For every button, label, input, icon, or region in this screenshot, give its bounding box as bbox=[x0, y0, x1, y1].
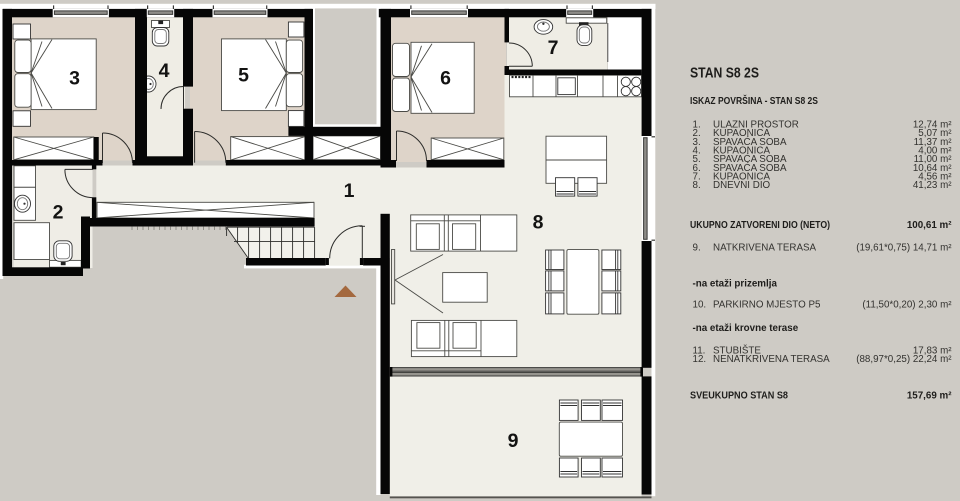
svg-text:41,23 m²: 41,23 m² bbox=[913, 180, 952, 191]
svg-text:9.: 9. bbox=[693, 243, 701, 254]
svg-text:UKUPNO ZATVORENI DIO (NETO): UKUPNO ZATVORENI DIO (NETO) bbox=[690, 220, 830, 231]
svg-text:(11,50*0,20) 2,30 m²: (11,50*0,20) 2,30 m² bbox=[862, 300, 952, 311]
svg-text:SVEUKUPNO STAN S8: SVEUKUPNO STAN S8 bbox=[690, 391, 789, 402]
svg-text:DNEVNI DIO: DNEVNI DIO bbox=[713, 180, 771, 191]
svg-text:12.: 12. bbox=[693, 354, 707, 365]
svg-text:(19,61*0,75) 14,71 m²: (19,61*0,75) 14,71 m² bbox=[856, 243, 952, 254]
svg-text:NENATKRIVENA TERASA: NENATKRIVENA TERASA bbox=[713, 354, 830, 365]
svg-text:-na etaži prizemlja: -na etaži prizemlja bbox=[693, 279, 778, 290]
svg-text:2: 2 bbox=[53, 202, 64, 224]
svg-text:PARKIRNO MJESTO P5: PARKIRNO MJESTO P5 bbox=[713, 300, 821, 311]
svg-text:NATKRIVENA TERASA: NATKRIVENA TERASA bbox=[713, 243, 817, 254]
svg-text:5: 5 bbox=[238, 65, 249, 87]
svg-text:3: 3 bbox=[69, 68, 80, 90]
svg-text:4: 4 bbox=[159, 60, 170, 82]
svg-text:157,69 m²: 157,69 m² bbox=[907, 391, 952, 402]
svg-text:100,61 m²: 100,61 m² bbox=[907, 220, 952, 231]
svg-text:8.: 8. bbox=[693, 180, 701, 191]
svg-text:6: 6 bbox=[440, 68, 451, 90]
svg-text:(88,97*0,25) 22,24 m²: (88,97*0,25) 22,24 m² bbox=[856, 354, 952, 365]
svg-text:10.: 10. bbox=[693, 300, 707, 311]
svg-text:7: 7 bbox=[548, 37, 559, 59]
svg-text:STAN S8 2S: STAN S8 2S bbox=[690, 65, 759, 82]
svg-text:1: 1 bbox=[344, 180, 355, 202]
svg-text:-na etaži krovne terase: -na etaži krovne terase bbox=[693, 323, 799, 334]
svg-text:8: 8 bbox=[533, 212, 544, 234]
svg-text:ISKAZ POVRŠINA - STAN S8 2S: ISKAZ POVRŠINA - STAN S8 2S bbox=[690, 95, 818, 107]
svg-text:9: 9 bbox=[508, 430, 519, 452]
